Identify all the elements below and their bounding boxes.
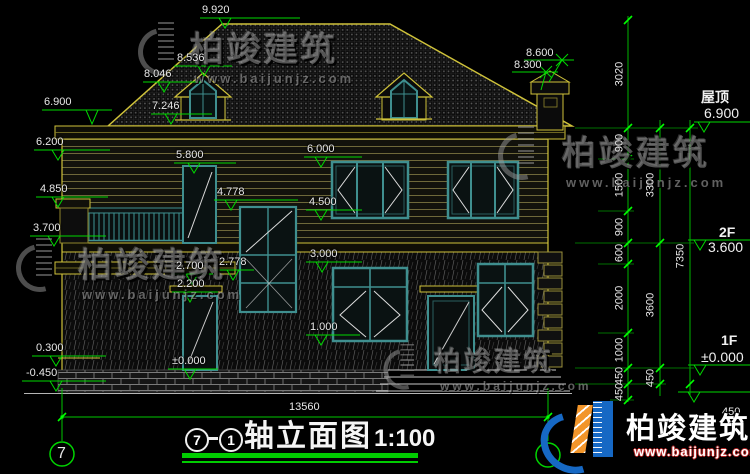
title-dash [207, 437, 218, 440]
dim-total-width: 13560 [289, 402, 320, 413]
chain-inner-1500: 1500 [615, 173, 626, 197]
dim-chimney-top: 8.600 [526, 48, 554, 59]
dim-beam: 6.200 [36, 137, 64, 148]
dim-peak: 9.920 [202, 5, 230, 16]
dim-win2f-top: 6.000 [307, 144, 335, 155]
drawing-scale: 1:100 [374, 426, 435, 452]
chain-mid-3300: 3300 [646, 173, 657, 197]
dim-rail-bottom: 3.700 [33, 223, 61, 234]
brand-logo: 柏竣建筑 www.baijunjz.com [538, 399, 750, 471]
chain-outer-7350: 7350 [676, 244, 687, 268]
logo-building-blue-icon [593, 401, 613, 457]
dim-door2f-top: 5.800 [176, 150, 204, 161]
chain-inner-3020: 3020 [615, 62, 626, 86]
logo-url-text: www.baijunjz.com [634, 444, 750, 459]
window-2f-right [448, 162, 518, 218]
logo-brand-text: 柏竣建筑 [626, 405, 750, 447]
drawing-title: 轴立面图 [244, 421, 372, 453]
chain-inner-1000: 1000 [615, 338, 626, 362]
dim-win2f-sill: 4.500 [309, 197, 337, 208]
dim-rail-top: 4.850 [40, 184, 68, 195]
dim-eave-left: 6.900 [44, 97, 72, 108]
dim-plinth: 0.300 [36, 343, 64, 354]
roof [55, 24, 572, 139]
chain-inner-600: 600 [615, 244, 626, 262]
dim-porch-top: 2.778 [219, 257, 247, 268]
axis-bubble-7: 7 [57, 446, 66, 462]
dim-porch-eave: 2.700 [176, 261, 204, 272]
cad-elevation-drawing: 柏竣建筑 www.baijunjz.com 柏竣建筑 www.baijunjz.… [0, 0, 750, 474]
window-1f-left [333, 268, 407, 341]
floor-elev-roof: 6.900 [704, 106, 739, 120]
floor-label-1f: 1F [721, 333, 737, 347]
entry-door-right [428, 296, 474, 370]
stair-window [240, 207, 296, 312]
chain-mid-3600: 3600 [646, 293, 657, 317]
dim-chimney-cap: 8.300 [514, 60, 542, 71]
title-underline-thin [182, 461, 418, 463]
balcony-door [183, 166, 216, 243]
dim-lintel: 2.200 [177, 279, 205, 290]
floor-elev-1f: ±0.000 [701, 350, 744, 364]
dim-floor-zero: ±0.000 [172, 356, 206, 367]
title-axis-left-bubble: 7 [185, 428, 209, 452]
dim-ground: -0.450 [26, 368, 57, 379]
floor-label-2f: 2F [719, 225, 735, 239]
title-axis-right-bubble: 1 [219, 428, 243, 452]
chain-mid-450: 450 [646, 369, 657, 387]
floor-label-roof: 屋顶 [701, 90, 729, 104]
dim-dormer-sill: 7.246 [152, 101, 180, 112]
dim-dormer-eave: 8.046 [144, 69, 172, 80]
dim-stair-win-top: 4.778 [217, 187, 245, 198]
floor-elev-2f: 3.600 [708, 240, 743, 254]
dim-win1f-top: 3.000 [310, 249, 338, 260]
chain-inner-900b: 900 [615, 218, 626, 236]
dimension-chains [575, 16, 698, 404]
dim-dormer-ridge: 8.536 [177, 53, 205, 64]
chain-inner-2000: 2000 [615, 286, 626, 310]
title-underline-thick [182, 453, 418, 458]
window-1f-right [478, 264, 533, 336]
chain-inner-900a: 900 [615, 134, 626, 152]
dim-win1f-sill: 1.000 [310, 322, 338, 333]
